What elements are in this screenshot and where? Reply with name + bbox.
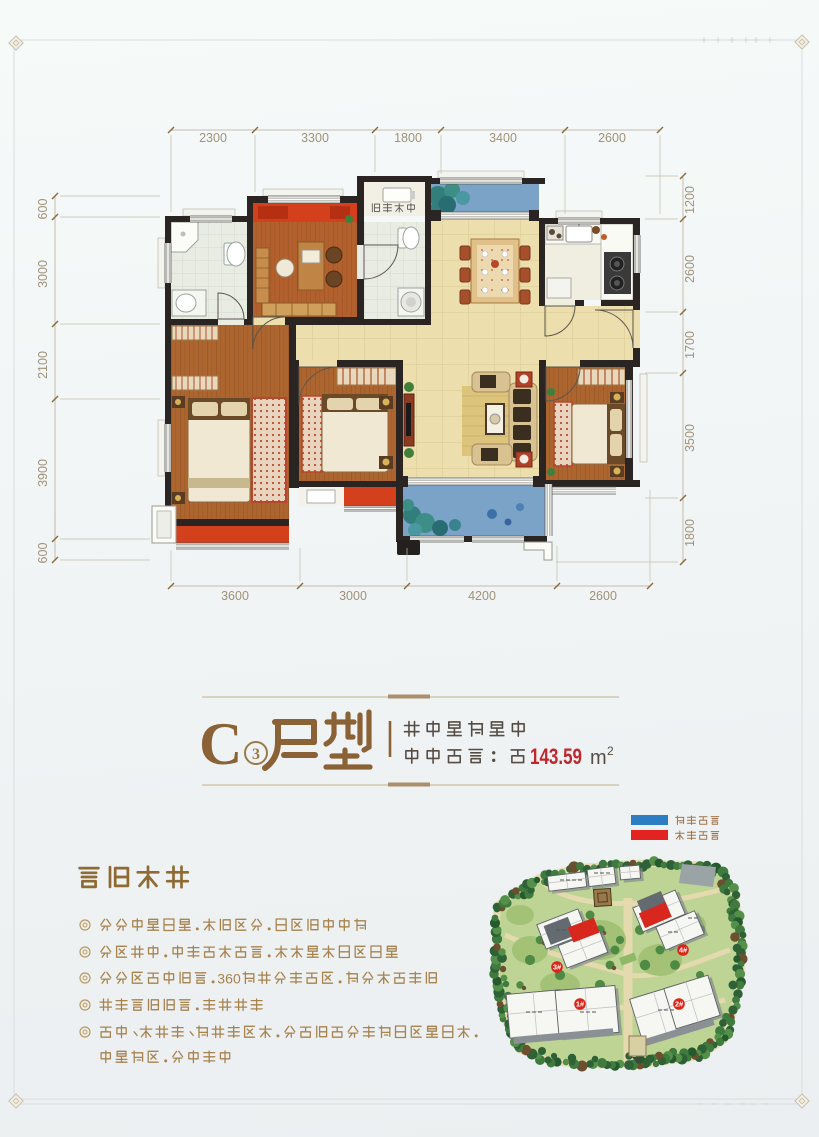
svg-text:1200: 1200 — [683, 186, 697, 214]
svg-text:3600: 3600 — [221, 589, 249, 603]
svg-text:3: 3 — [252, 746, 260, 763]
svg-text:3900: 3900 — [36, 459, 50, 487]
svg-text:600: 600 — [36, 199, 50, 220]
svg-text:0: 0 — [233, 971, 241, 987]
svg-text:2600: 2600 — [683, 255, 697, 283]
svg-text:3300: 3300 — [301, 131, 329, 145]
svg-text:2600: 2600 — [589, 589, 617, 603]
svg-text:3000: 3000 — [36, 260, 50, 288]
svg-text:4200: 4200 — [468, 589, 496, 603]
svg-text:m: m — [590, 747, 607, 769]
svg-text:3#: 3# — [553, 963, 562, 972]
svg-text:2600: 2600 — [598, 131, 626, 145]
svg-text:3500: 3500 — [683, 424, 697, 452]
svg-text:2100: 2100 — [36, 351, 50, 379]
svg-text:3400: 3400 — [489, 131, 517, 145]
svg-text:3: 3 — [217, 971, 225, 987]
svg-text:2300: 2300 — [199, 131, 227, 145]
svg-text:1800: 1800 — [683, 519, 697, 547]
svg-text:2: 2 — [607, 744, 614, 758]
svg-text:1800: 1800 — [394, 131, 422, 145]
svg-text:4#: 4# — [679, 946, 688, 955]
svg-text:1700: 1700 — [683, 331, 697, 359]
svg-text:3000: 3000 — [339, 589, 367, 603]
svg-text:143.59: 143.59 — [530, 744, 582, 769]
svg-text:C: C — [199, 711, 242, 777]
svg-text:600: 600 — [36, 543, 50, 564]
svg-text:6: 6 — [225, 971, 233, 987]
svg-text:1#: 1# — [576, 1000, 585, 1009]
svg-text:2#: 2# — [675, 1000, 684, 1009]
